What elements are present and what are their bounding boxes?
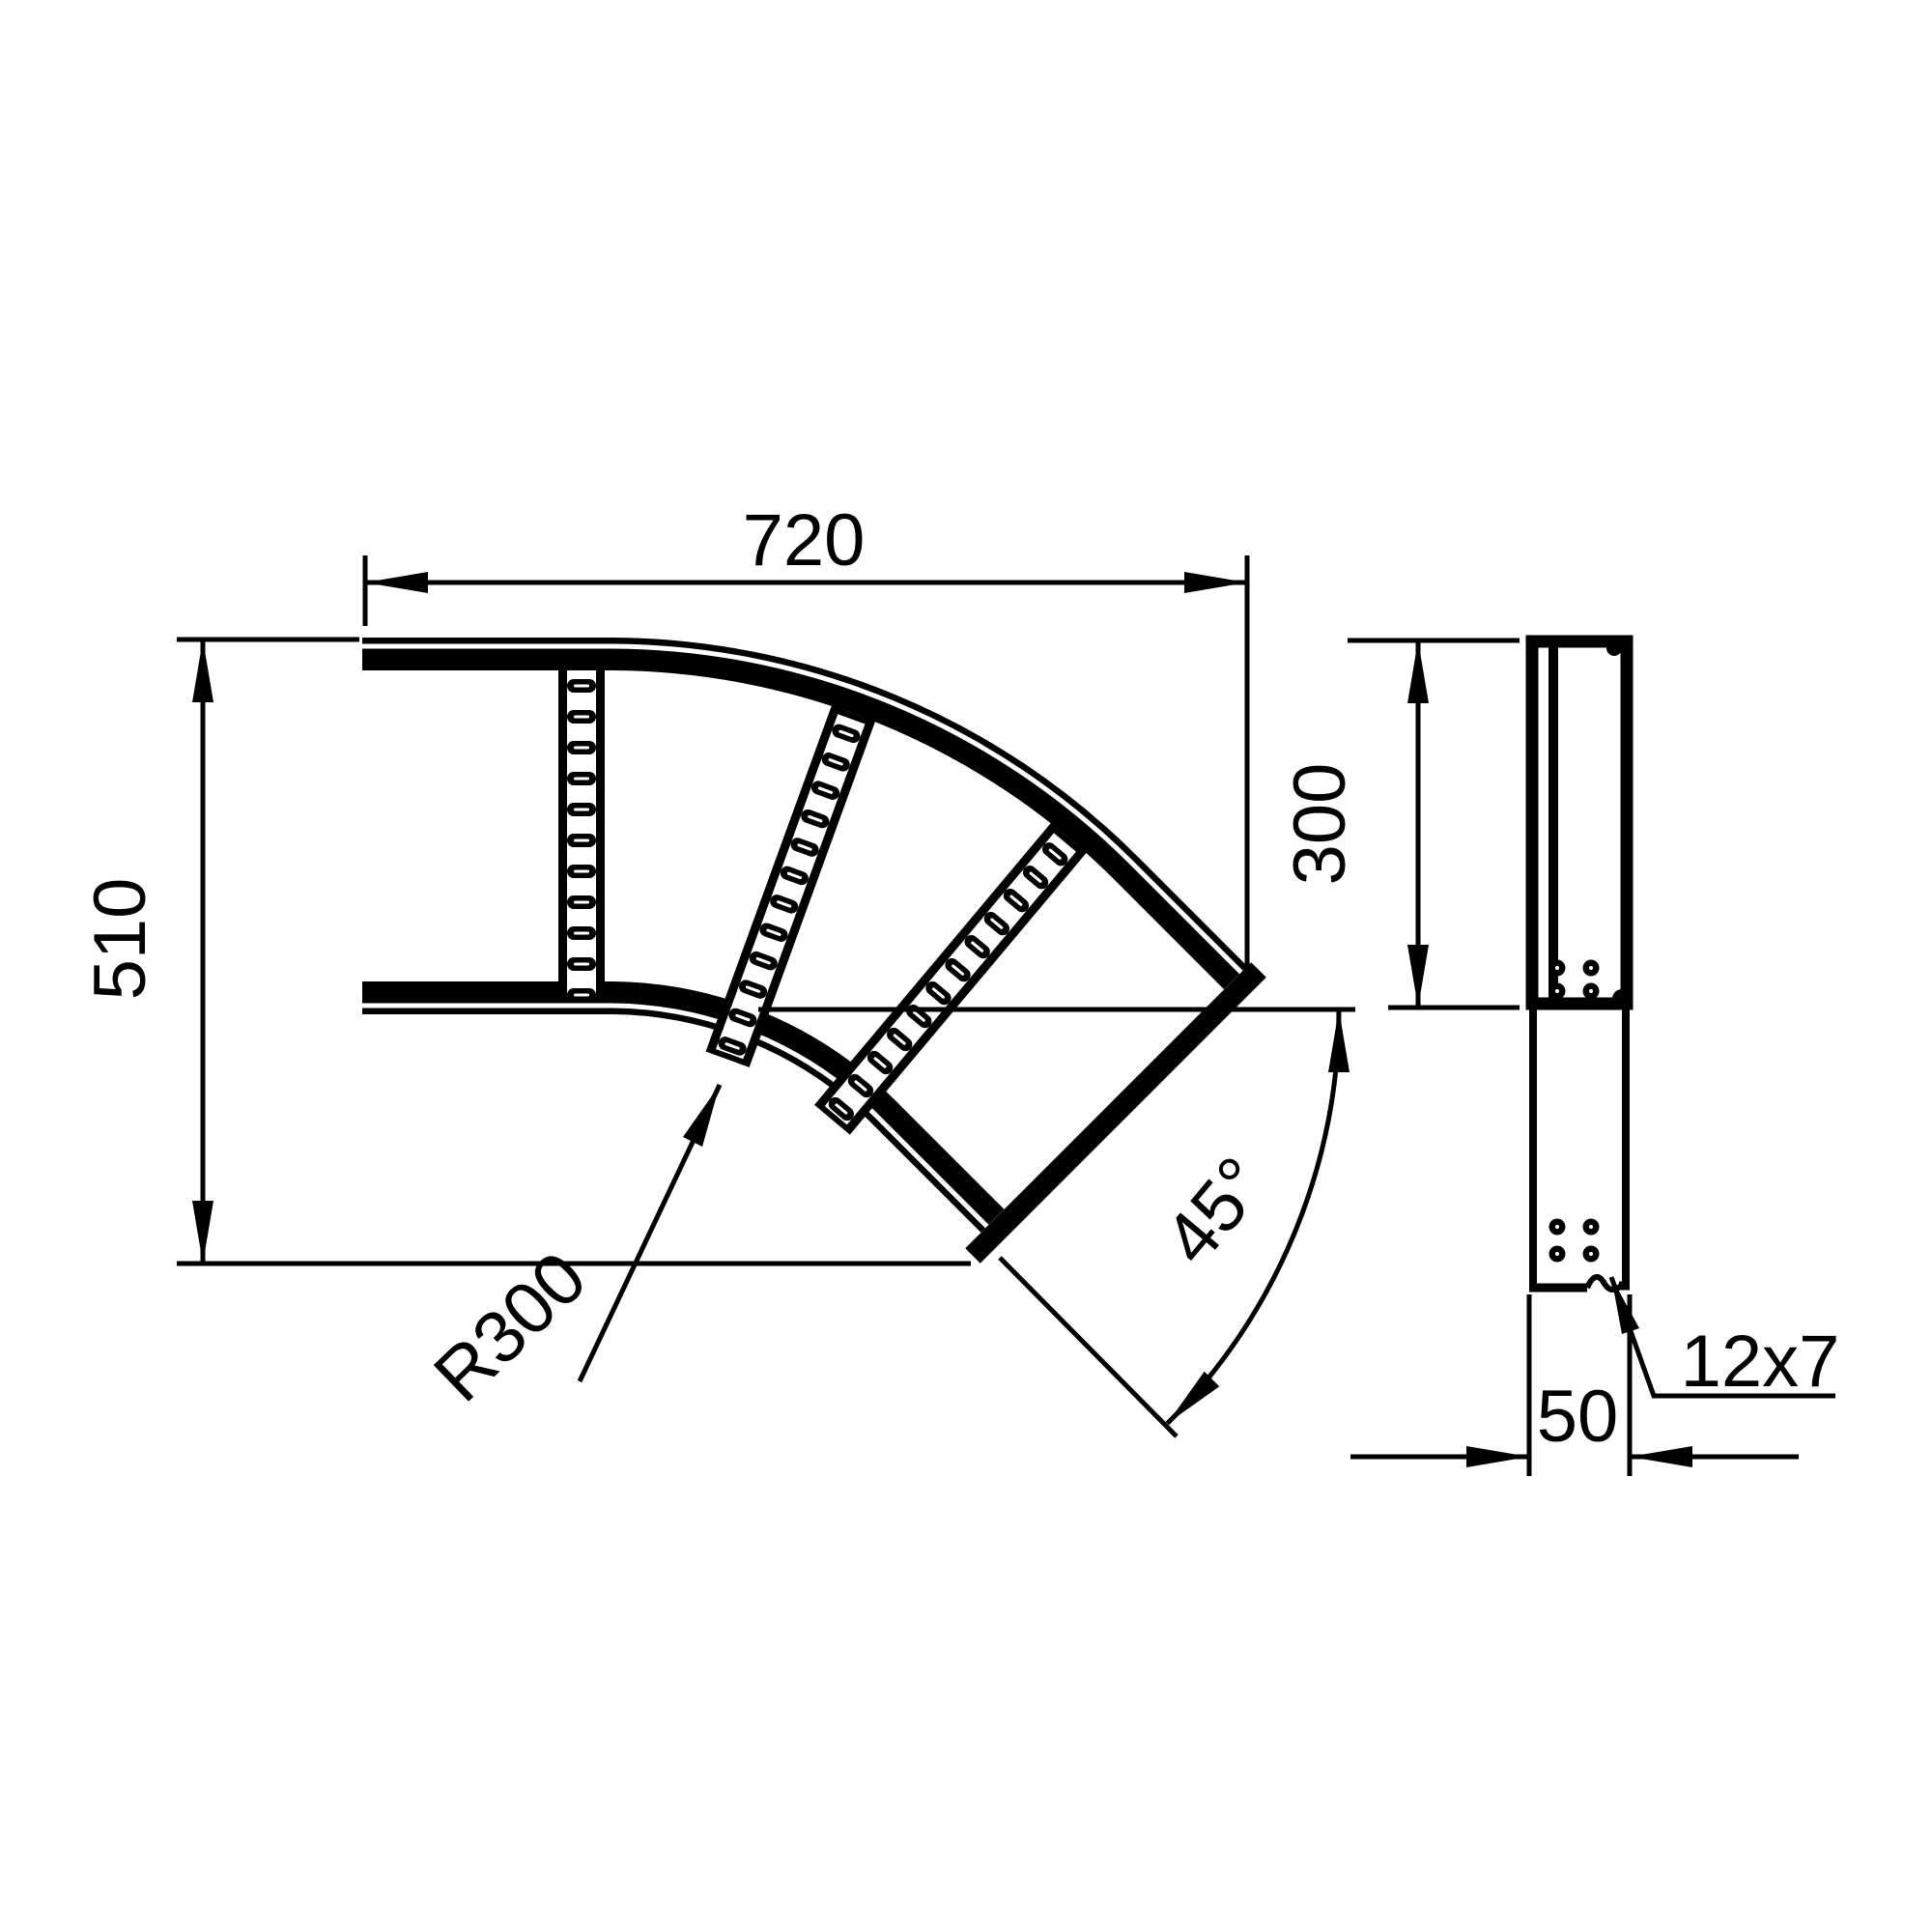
dimension-radius-r300: R300	[418, 1085, 720, 1417]
profile-hole-center	[1589, 1252, 1593, 1256]
arrowhead-up-icon	[1407, 640, 1429, 703]
dimension-side-width-value: 300	[1279, 763, 1361, 886]
rung-1	[558, 649, 605, 1003]
side-view-upper-segment	[1532, 641, 1627, 1004]
label-slot-size-value: 12x7	[1681, 1321, 1840, 1403]
profile-hole-center	[1589, 989, 1593, 993]
rung-slot-highlight	[574, 994, 589, 997]
arrowhead-down-icon	[192, 1201, 213, 1264]
dimension-width-720: 720	[365, 499, 1247, 993]
side-view-profile	[1529, 640, 1632, 1290]
profile-hole-center	[1555, 989, 1559, 993]
arrowhead-left-icon	[1630, 1446, 1692, 1467]
dimension-width-value: 720	[743, 499, 866, 582]
arrowhead-left-icon	[365, 572, 428, 593]
profile-hole-center	[1555, 1225, 1559, 1229]
arrowhead-arc-top-icon	[1328, 1009, 1350, 1072]
dimension-height-value: 510	[79, 878, 161, 1001]
label-slot-size-12x7: 12x7	[1611, 1277, 1839, 1403]
rung-slot-highlight	[574, 932, 589, 935]
side-view-corner-joint-bottom	[1612, 989, 1632, 1009]
arrowhead-up-icon	[192, 639, 213, 702]
technical-drawing: 720 510 R300 45° 300	[0, 0, 1932, 1932]
profile-hole-center	[1589, 1225, 1593, 1229]
rung-slot-highlight	[574, 870, 589, 873]
drawing-canvas: 720 510 R300 45° 300	[0, 0, 1932, 1932]
side-view-lower-holes	[1549, 1219, 1600, 1263]
arrowhead-arc-bottom-icon	[1168, 1372, 1220, 1424]
dimension-side-width-300: 300	[1279, 640, 1520, 1008]
arrowhead-radius-icon	[683, 1085, 720, 1147]
main-view-ladder-bend	[362, 646, 1259, 1256]
dimension-angle-value: 45°	[1149, 1142, 1283, 1280]
arrowhead-down-icon	[1407, 945, 1429, 1008]
profile-hole-center	[1589, 966, 1593, 970]
arrowhead-right-icon	[1466, 1446, 1529, 1467]
arrowhead-right-icon	[1184, 572, 1247, 593]
rung-3	[814, 823, 1087, 1135]
rung-2	[706, 705, 875, 1066]
rung-slot-highlight	[574, 901, 589, 904]
angle-reference-line-45	[1000, 1258, 1177, 1436]
side-view-corner-joint-top	[1606, 640, 1622, 656]
profile-hole-center	[1555, 1252, 1559, 1256]
profile-hole-center	[1555, 966, 1559, 970]
rung-slot-highlight	[574, 839, 589, 842]
dimension-side-depth-value: 50	[1537, 1376, 1619, 1458]
rung-1-body	[567, 655, 596, 997]
rung-slot-highlight	[574, 747, 589, 750]
rung-slot-highlight	[574, 716, 589, 719]
rung-slot-highlight	[574, 685, 589, 688]
rung-slot-highlight	[574, 963, 589, 966]
rung-slot-highlight	[574, 778, 589, 781]
rung-slot-highlight	[574, 809, 589, 811]
